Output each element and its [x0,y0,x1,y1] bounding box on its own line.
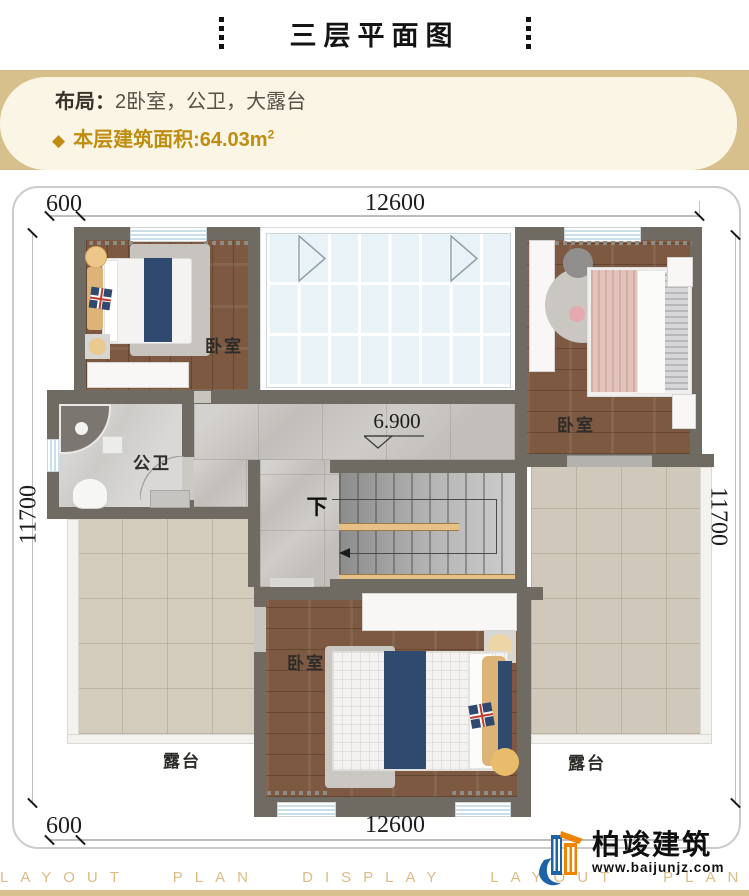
bed-blanket [591,270,637,392]
window [455,802,511,817]
bed-pillows [637,270,667,394]
window [130,227,207,242]
room-label-terrace-right: 露台 [557,749,617,774]
curtain [204,241,249,245]
sliding-door [567,455,652,467]
wall [330,579,515,587]
page-title-row: 三层平面图 [0,12,749,54]
hallway-floor [194,404,515,460]
union-jack-pillow [468,702,495,729]
skylight-opening-icon [449,233,479,284]
page-title: 三层平面图 [290,14,460,53]
pouf [569,306,585,322]
stairs-down-label: 下 [302,491,332,521]
curtain [547,241,692,245]
stool [89,338,106,355]
window [277,802,336,817]
logo-url: www.baijunjz.com [592,860,725,875]
skylight-frame [260,227,517,394]
stair-direction-arrow-icon [339,548,350,558]
wall [248,227,260,404]
room-label-bedroom-tr: 卧室 [546,411,606,436]
window [564,227,641,242]
dim-left-11700: 11700 [16,475,43,555]
shelf [102,436,123,454]
dim-bottom-12600: 12600 [347,812,443,839]
bottom-band [0,890,749,896]
floor-plan-page: 三层平面图 布局：2卧室，公卫，大露台 ◆本层建筑面积:64.03m2 [0,0,749,896]
layout-value: 2卧室，公卫，大露台 [115,91,306,113]
toilet [72,478,108,509]
stair-path-line [496,499,497,554]
curtain [267,791,329,795]
title-dash-left-icon [219,17,224,49]
dim-bottom-600: 600 [32,813,96,840]
terrace-left-parapet [67,734,256,744]
layout-line: 布局：2卧室，公卫，大露台 [55,85,306,114]
terrace-left-parapet [67,519,79,744]
wall [47,390,515,404]
room-label-bedroom-tl: 卧室 [194,332,254,357]
bed-runner [384,651,426,769]
stair-landing [270,578,314,587]
nightstand [667,257,693,287]
hallway-floor [260,460,339,587]
area-label: 本层建筑面积: [73,129,200,151]
wall [248,460,260,587]
logo-text-block: 柏竣建筑 www.baijunjz.com [592,830,725,875]
nightstand [672,394,696,429]
stair-path-line [332,499,497,500]
dim-top-12600: 12600 [350,190,440,217]
elevation-value: 6.900 [364,409,430,434]
dimension-line [735,234,736,804]
terrace-left-floor [77,519,254,734]
wall [47,507,260,519]
window-opening [254,607,266,652]
skylight-opening-icon [297,233,327,284]
dim-top-600: 600 [32,191,96,218]
floor-plan-canvas: 卧室 卧室 公卫 6.900 下 露台 露台 [12,186,741,849]
dim-right-11700: 11700 [705,477,732,557]
area-sup: 2 [268,127,275,141]
bed-cushions [665,272,688,390]
headboard [498,661,512,761]
room-label-bedroom-bottom: 卧室 [276,649,336,674]
union-jack-pillow [89,287,113,311]
stair-path-line [347,553,497,554]
bed-runner [144,258,172,342]
round-rug [491,748,519,776]
shower-head-icon [75,422,88,435]
logo-building-icon [534,830,586,888]
company-logo: 柏竣建筑 www.baijunjz.com [534,830,725,888]
layout-label: 布局： [55,91,115,113]
room-label-bathroom: 公卫 [122,449,182,474]
dresser [87,362,189,388]
elevation-symbol-icon [364,435,426,450]
wall [330,460,515,473]
title-dash-right-icon [526,17,531,49]
stool [85,246,107,268]
vanity [150,490,190,508]
wall [517,587,531,817]
area-line: ◆本层建筑面积:64.03m2 [52,123,274,152]
curtain [89,241,134,245]
terrace-right-parapet [531,734,712,744]
curtain [452,791,514,795]
wall [74,227,86,404]
terrace-right-floor [531,467,700,734]
area-value: 64.03m [200,129,268,151]
wardrobe [362,593,517,631]
room-label-terrace-left: 露台 [152,747,212,772]
diamond-icon: ◆ [52,131,65,150]
stair-handrail [339,523,459,531]
logo-name: 柏竣建筑 [592,830,725,860]
wall [515,227,527,600]
dimension-line [49,215,699,217]
